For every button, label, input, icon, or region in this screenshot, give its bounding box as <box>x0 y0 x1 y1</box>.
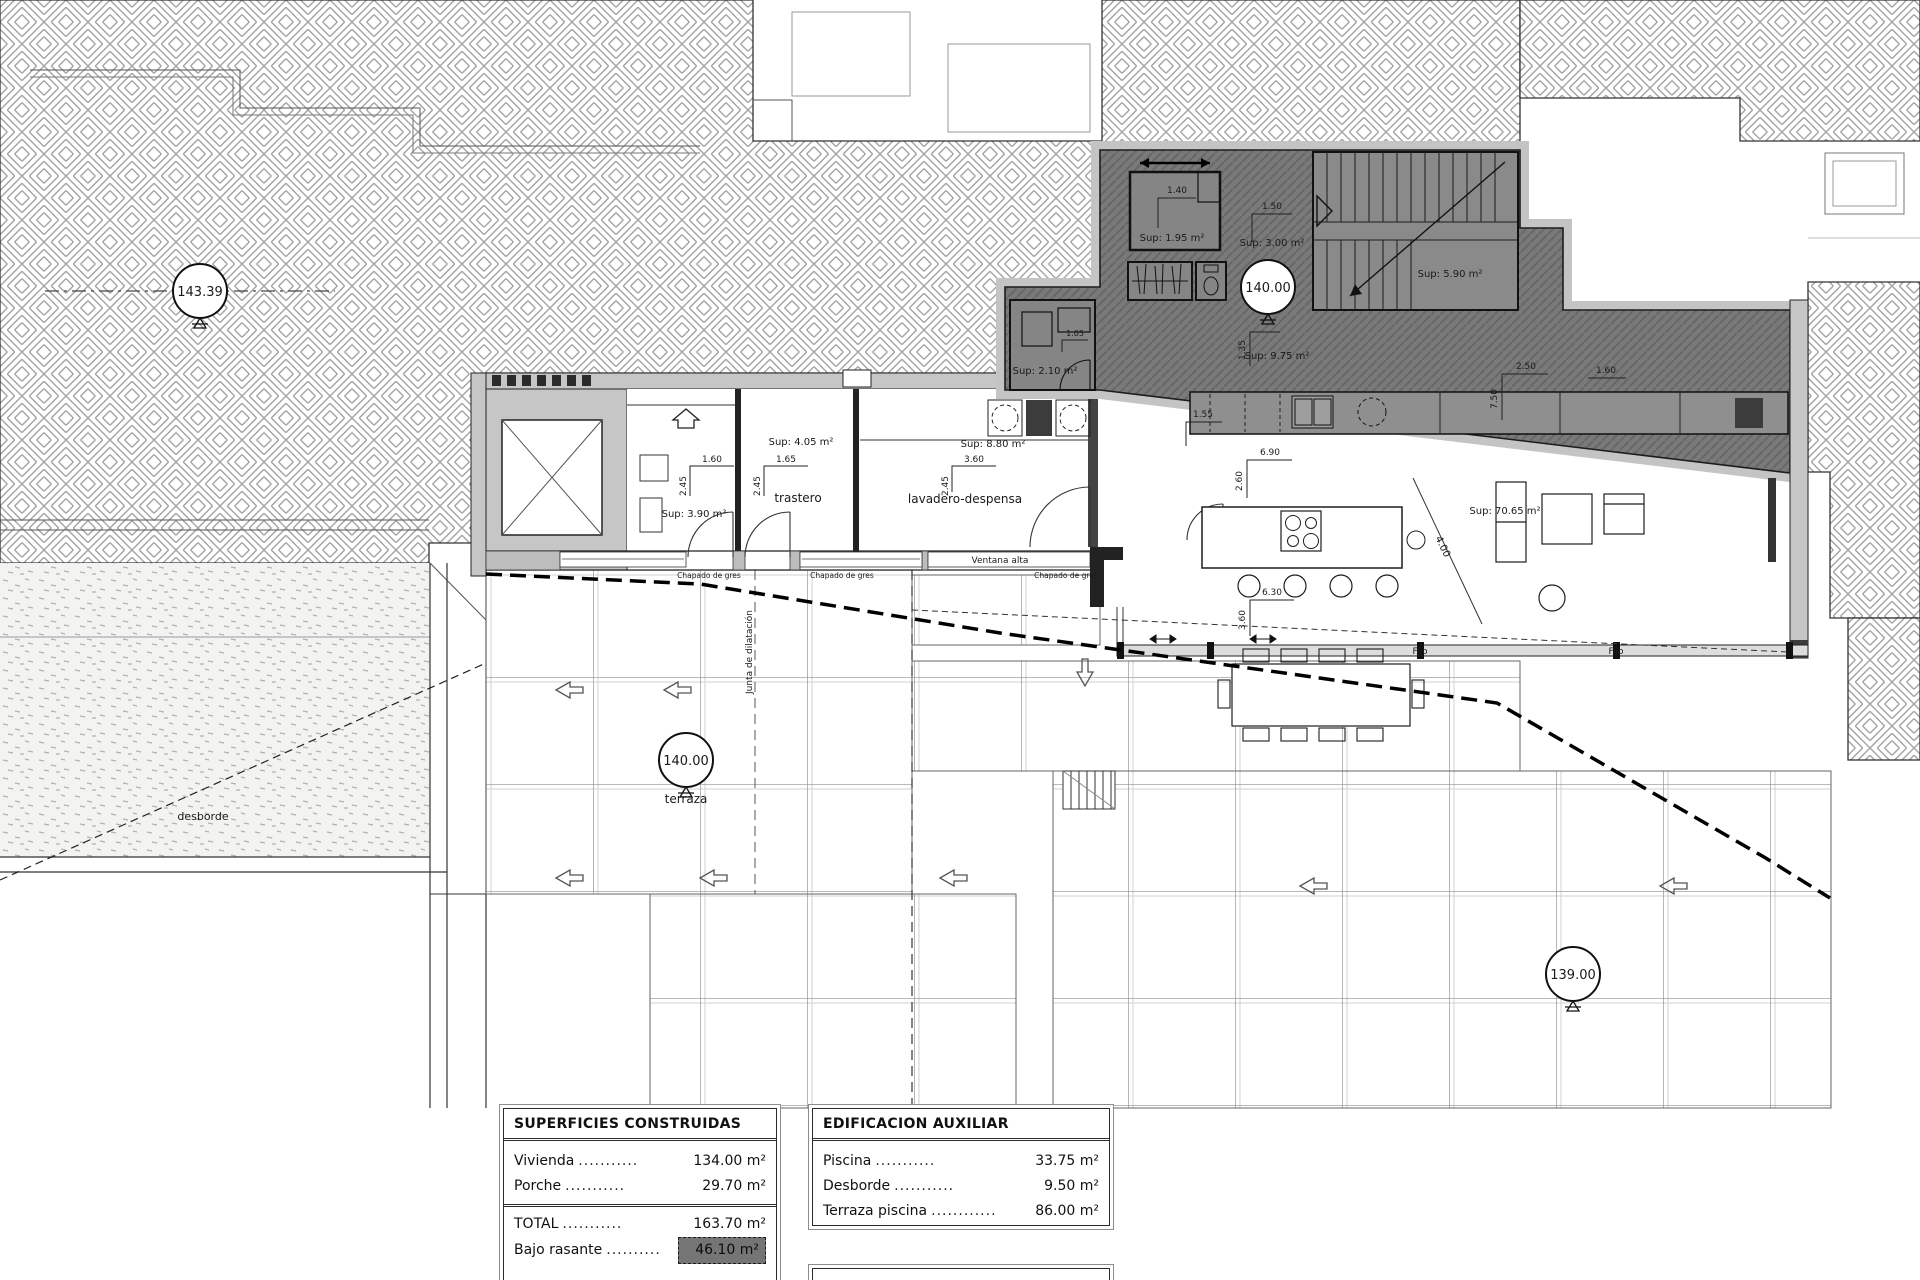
label-junta: Junta de dilatación <box>744 610 755 695</box>
dim: 2.50 <box>1516 362 1536 372</box>
table-superficies-title: SUPERFICIES CONSTRUIDAS <box>504 1109 776 1141</box>
table-row: Porche ........... 29.70 m² <box>514 1174 766 1199</box>
row-label: Desborde <box>823 1174 890 1199</box>
dim: 7.50 <box>1490 389 1500 409</box>
row-value: 134.00 m² <box>692 1149 766 1174</box>
wall-pillar <box>843 370 871 387</box>
dim: 2.45 <box>941 476 951 496</box>
row-label: Terraza piscina <box>823 1199 927 1224</box>
table-auxiliar-title: EDIFICACION AUXILIAR <box>813 1109 1109 1141</box>
row-label: Bajo rasante <box>514 1238 602 1263</box>
row-dots: ........... <box>578 1149 688 1174</box>
roof-outline-a <box>792 12 910 96</box>
row-label: TOTAL <box>514 1212 558 1237</box>
table-row: Piscina ........... 33.75 m² <box>823 1149 1099 1174</box>
row-dots: ........... <box>875 1149 1021 1174</box>
sup-7065: Sup: 70.65 m² <box>1469 506 1540 517</box>
room-terraza: terraza <box>665 792 708 806</box>
label-fijo-a: Fijo <box>1412 647 1428 657</box>
sup-405: Sup: 4.05 m² <box>769 437 834 448</box>
row-dots: ........... <box>562 1212 688 1237</box>
skylight-outline <box>1825 153 1904 214</box>
row-label: Vivienda <box>514 1149 574 1174</box>
dim: 1.60 <box>702 455 722 465</box>
svg-text:140.00: 140.00 <box>1245 281 1291 296</box>
row-value: 163.70 m² <box>692 1212 766 1237</box>
room-trastero: trastero <box>774 491 821 505</box>
table-auxiliar: EDIFICACION AUXILIAR Piscina ...........… <box>812 1108 1110 1226</box>
label-fijo-b: Fijo <box>1608 647 1624 657</box>
row-dots: ........... <box>565 1174 688 1199</box>
sup-390: Sup: 3.90 m² <box>662 509 727 520</box>
label-chapado-b: Chapado de gres <box>810 571 874 580</box>
dim: 2.45 <box>679 476 689 496</box>
dim: 1.60 <box>1596 366 1616 376</box>
sup-975: Sup: 9.75 m² <box>1245 351 1310 362</box>
floor-plan-canvas: 143.39 140.00 140.00 139.00 Sup: 1.95 m²… <box>0 0 1920 1280</box>
table-separator <box>504 1204 776 1207</box>
row-value: 33.75 m² <box>1025 1149 1099 1174</box>
label-desborde: desborde <box>177 810 229 823</box>
dim: 4.00 <box>1432 534 1452 559</box>
floor-plan-sheet: 143.39 140.00 140.00 139.00 Sup: 1.95 m²… <box>0 0 1920 1280</box>
row-value-highlight: 46.10 m² <box>678 1237 766 1264</box>
dim: 1.50 <box>1262 202 1282 212</box>
svg-text:139.00: 139.00 <box>1550 968 1596 983</box>
label-chapado-a: Chapado de gres <box>677 571 741 580</box>
dim: 1.35 <box>1238 340 1248 360</box>
table-row-total: TOTAL ........... 163.70 m² <box>514 1212 766 1237</box>
dim: 3.60 <box>1238 610 1248 630</box>
dim: 1.55 <box>1193 410 1213 420</box>
row-value: 9.50 m² <box>1025 1174 1099 1199</box>
dim: 6.30 <box>1262 588 1282 598</box>
row-value: 29.70 m² <box>692 1174 766 1199</box>
row-value: 86.00 m² <box>1025 1199 1099 1224</box>
dim: 6.90 <box>1260 448 1280 458</box>
table-row: Terraza piscina ............ 86.00 m² <box>823 1199 1099 1224</box>
table-row-bajo-rasante: Bajo rasante .......... 46.10 m² <box>514 1237 766 1264</box>
table-partial-cutoff <box>812 1268 1110 1280</box>
row-dots: .......... <box>606 1238 674 1263</box>
table-row: Desborde ........... 9.50 m² <box>823 1174 1099 1199</box>
svg-text:140.00: 140.00 <box>663 754 709 769</box>
dim: 1.65 <box>776 455 796 465</box>
table-row: Vivienda ........... 134.00 m² <box>514 1149 766 1174</box>
exterior-stair <box>1063 771 1115 809</box>
dim: 1.05 <box>1066 329 1084 338</box>
dim: 3.60 <box>964 455 984 465</box>
row-label: Piscina <box>823 1149 871 1174</box>
svg-text:143.39: 143.39 <box>177 285 223 300</box>
row-label: Porche <box>514 1174 561 1199</box>
sup-210: Sup: 2.10 m² <box>1013 366 1078 377</box>
sup-300: Sup: 3.00 m² <box>1240 238 1305 249</box>
table-superficies: SUPERFICIES CONSTRUIDAS Vivienda .......… <box>503 1108 777 1280</box>
sup-195: Sup: 1.95 m² <box>1140 233 1205 244</box>
row-dots: ............ <box>931 1199 1021 1224</box>
dim: 1.40 <box>1167 186 1187 196</box>
sup-590: Sup: 5.90 m² <box>1418 269 1483 280</box>
room-lavadero: lavadero-despensa <box>908 492 1022 506</box>
row-dots: ........... <box>894 1174 1021 1199</box>
dim: 2.60 <box>1235 471 1245 491</box>
roof-outline-b <box>948 44 1090 132</box>
sup-880: Sup: 8.80 m² <box>961 439 1026 450</box>
label-ventana-alta: Ventana alta <box>972 556 1029 566</box>
label-chapado-c: Chapado de gres <box>1034 571 1098 580</box>
dim: 2.45 <box>753 476 763 496</box>
